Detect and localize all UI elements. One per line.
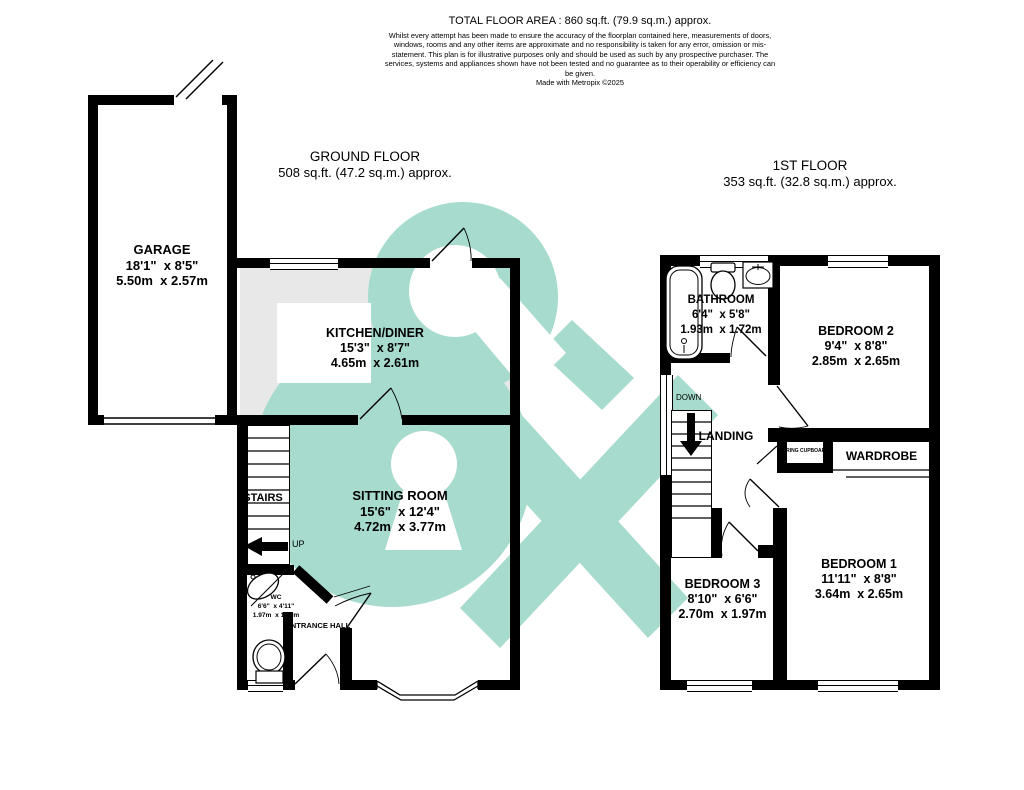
- disclaimer: Whilst every attempt has been made to en…: [380, 31, 780, 78]
- kitchen-label: KITCHEN/DINER 15'3" x 8'7" 4.65m x 2.61m: [305, 325, 445, 371]
- wardrobe-label: WARDROBE: [833, 449, 930, 463]
- sitting-room-label: SITTING ROOM 15'6" x 12'4" 4.72m x 3.77m: [330, 488, 470, 534]
- garage-door: [104, 418, 222, 424]
- wardrobe-doors: [833, 470, 930, 477]
- room-dims-metric: 2.70m x 1.97m: [655, 607, 790, 622]
- total-floor-area: TOTAL FLOOR AREA : 860 sq.ft. (79.9 sq.m…: [380, 14, 780, 28]
- room-dims-imperial: 9'4" x 8'8": [786, 339, 926, 354]
- sink: [743, 262, 773, 288]
- room-dims-metric: 1.93m x 1.72m: [662, 323, 780, 338]
- bedroom1-door: [745, 479, 779, 507]
- room-name: BATHROOM: [662, 293, 780, 308]
- room-dims-imperial: 18'1" x 8'5": [92, 258, 232, 273]
- room-dims-imperial: 8'10" x 6'6": [655, 592, 790, 607]
- ground-floor-title: GROUND FLOOR 508 sq.ft. (47.2 sq.m.) app…: [240, 148, 490, 181]
- down-label: DOWN: [676, 393, 716, 402]
- kitchen-sitting-door: [360, 388, 402, 419]
- room-dims-metric: 4.65m x 2.61m: [305, 356, 445, 371]
- room-name: BEDROOM 2: [786, 323, 926, 339]
- room-dims-metric: 2.85m x 2.65m: [786, 354, 926, 369]
- room-dims-metric: 1.97m x 1.49m: [242, 611, 310, 620]
- room-dims-imperial: 6'4" x 5'8": [662, 308, 780, 323]
- first-floor-area: 353 sq.ft. (32.8 sq.m.) approx.: [685, 174, 935, 190]
- kitchen-back-door: [432, 228, 471, 261]
- room-dims-imperial: 15'6" x 12'4": [330, 504, 470, 519]
- bathroom-label: BATHROOM 6'4" x 5'8" 1.93m x 1.72m: [662, 293, 780, 338]
- entrance-hall-label: ENTRANCE HALL: [281, 621, 355, 630]
- room-dims-metric: 4.72m x 3.77m: [330, 519, 470, 534]
- airing-cupboard-label: AIRING CUPBOARD: [781, 448, 829, 454]
- bedroom3-door: [721, 522, 758, 556]
- wc-label: WC 6'6" x 4'11" 1.97m x 1.49m: [242, 593, 310, 620]
- up-arrow-icon: [244, 537, 288, 556]
- garage-door-top: [176, 60, 223, 99]
- bedroom3-label: BEDROOM 3 8'10" x 6'6" 2.70m x 1.97m: [655, 576, 790, 622]
- room-name: KITCHEN/DINER: [305, 325, 445, 341]
- room-dims-imperial: 6'6" x 4'11": [242, 602, 310, 611]
- room-name: SITTING ROOM: [330, 488, 470, 504]
- first-floor-name: 1ST FLOOR: [685, 157, 935, 174]
- bedroom2-label: BEDROOM 2 9'4" x 8'8" 2.85m x 2.65m: [786, 323, 926, 369]
- front-door: [295, 654, 339, 684]
- bay-window: [377, 681, 478, 700]
- up-label: UP: [292, 539, 316, 549]
- room-dims-metric: 3.64m x 2.65m: [790, 587, 928, 602]
- room-name: WC: [242, 593, 310, 602]
- ground-floor-area: 508 sq.ft. (47.2 sq.m.) approx.: [240, 165, 490, 181]
- stairs-text: STAIRS: [233, 490, 293, 506]
- credit: Made with Metropix ©2025: [380, 78, 780, 87]
- room-name: BEDROOM 1: [790, 556, 928, 572]
- floorplan-page: TOTAL FLOOR AREA : 860 sq.ft. (79.9 sq.m…: [0, 0, 1024, 790]
- wc-toilet: [253, 640, 285, 683]
- room-name: GARAGE: [92, 242, 232, 258]
- airing-cupboard-door: [757, 446, 777, 464]
- room-name: BEDROOM 3: [655, 576, 790, 592]
- stair-treads-ground: [247, 438, 290, 529]
- room-dims-metric: 5.50m x 2.57m: [92, 273, 232, 288]
- room-dims-imperial: 15'3" x 8'7": [305, 341, 445, 356]
- landing-label: LANDING: [695, 429, 757, 443]
- room-dims-imperial: 11'11" x 8'8": [790, 572, 928, 587]
- bedroom2-door: [777, 386, 808, 428]
- stairs-label: STAIRS: [233, 490, 293, 506]
- garage-label: GARAGE 18'1" x 8'5" 5.50m x 2.57m: [92, 242, 232, 288]
- header: TOTAL FLOOR AREA : 860 sq.ft. (79.9 sq.m…: [380, 14, 780, 87]
- ground-floor-name: GROUND FLOOR: [240, 148, 490, 165]
- first-floor-title: 1ST FLOOR 353 sq.ft. (32.8 sq.m.) approx…: [685, 157, 935, 190]
- bedroom1-label: BEDROOM 1 11'11" x 8'8" 3.64m x 2.65m: [790, 556, 928, 602]
